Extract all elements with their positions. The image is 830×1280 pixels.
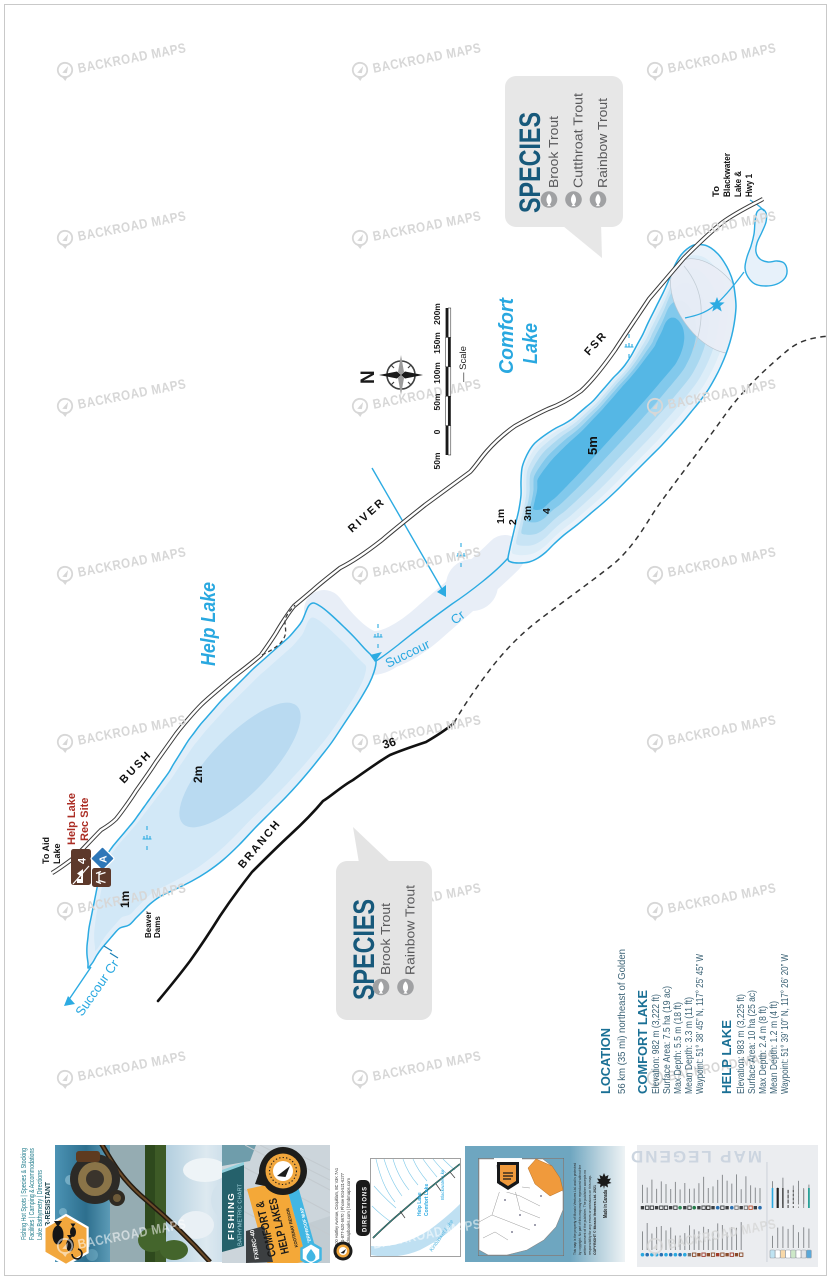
svg-text:— Scale: — Scale (458, 346, 469, 382)
svg-text:Max Depth: 5.5 m (18 ft): Max Depth: 5.5 m (18 ft) (673, 1002, 684, 1094)
svg-text:Cutthroat Trout: Cutthroat Trout (572, 92, 586, 188)
svg-text:This map is the property of Mu: This map is the property of Mussio Ventu… (573, 1163, 577, 1255)
svg-text:2m: 2m (191, 766, 205, 783)
svg-text:HELP LAKE: HELP LAKE (720, 1020, 734, 1094)
svg-text:Mean Depth: 1.2 m (4 ft): Mean Depth: 1.2 m (4 ft) (769, 1001, 780, 1094)
svg-text:Help Lake: Help Lake (417, 1192, 423, 1216)
svg-text:N: N (358, 370, 379, 384)
svg-text:by copyright. No part of this: by copyright. No part of this map may be… (578, 1165, 582, 1255)
svg-text:Lake: Lake (52, 843, 62, 864)
svg-text:written consent of the publish: written consent of the publisher. The pu… (583, 1170, 587, 1255)
svg-text:Max Depth: 2.4 m (8 ft): Max Depth: 2.4 m (8 ft) (758, 1006, 769, 1094)
svg-text:Made in Canada: Made in Canada (603, 1190, 609, 1218)
svg-text:Rainbow Trout: Rainbow Trout (404, 884, 418, 975)
svg-text:MAP LEGEND: MAP LEGEND (629, 1147, 762, 1166)
svg-text:COMFORT LAKE: COMFORT LAKE (636, 990, 650, 1094)
svg-text:Facilities | Camping & Accommo: Facilities | Camping & Accommodations (29, 1148, 36, 1240)
svg-text:Surface Area: 10 ha (25 ac): Surface Area: 10 ha (25 ac) (747, 990, 758, 1094)
svg-text:2: 2 (507, 519, 519, 525)
svg-text:Help Lake: Help Lake (66, 793, 78, 845)
svg-text:200m: 200m (432, 303, 442, 325)
svg-text:To: To (711, 186, 722, 197)
svg-text:Elevation: 982 m (3,222 ft): Elevation: 982 m (3,222 ft) (651, 994, 662, 1094)
svg-text:Lake &: Lake & (733, 171, 744, 197)
svg-text:Elevation: 983 m (3,225 ft): Elevation: 983 m (3,225 ft) (736, 994, 747, 1094)
svg-text:Surface Area: 7.5 ha (19 ac): Surface Area: 7.5 ha (19 ac) (662, 986, 673, 1094)
svg-text:1m: 1m (495, 509, 507, 524)
svg-text:4: 4 (77, 857, 89, 864)
svg-text:Rec Site: Rec Site (79, 798, 91, 841)
svg-text:COPYRIGHT © Mussio Ventures Lt: COPYRIGHT © Mussio Ventures Ltd. 2021 (593, 1185, 597, 1255)
svg-text:Beaver: Beaver (144, 911, 153, 938)
svg-text:Fishing Hot Spots | Species &: Fishing Hot Spots | Species & Stocking (21, 1148, 28, 1240)
svg-text:Dams: Dams (153, 916, 162, 938)
svg-text:100m: 100m (432, 362, 442, 384)
svg-text:50m: 50m (432, 393, 442, 410)
svg-text:4: 4 (541, 508, 553, 514)
svg-text:Brook Trout: Brook Trout (547, 115, 561, 188)
svg-text:DIRECTIONS: DIRECTIONS (363, 1186, 369, 1232)
svg-text:0: 0 (432, 429, 442, 434)
svg-text:Blackwater Lke: Blackwater Lke (440, 1169, 445, 1200)
svg-text:50m: 50m (432, 452, 442, 469)
svg-text:Blackwater: Blackwater (722, 153, 733, 197)
svg-text:56 km (35 mi) northeast of Gol: 56 km (35 mi) northeast of Golden (617, 949, 628, 1094)
svg-text:Waypoint: 51° 39’ 10” N, 117°: Waypoint: 51° 39’ 10” N, 117° 26’ 20” W (780, 954, 791, 1094)
svg-text:150m: 150m (432, 332, 442, 354)
svg-text:A: A (98, 855, 110, 863)
svg-text:Waypoint: 51° 38’ 45” N, 117°: Waypoint: 51° 38’ 45” N, 117° 25’ 45” W (695, 954, 706, 1094)
svg-text:responsibility for any errors: responsibility for any errors or omissio… (588, 1175, 592, 1255)
svg-text:BATHYMETRIC CHART: BATHYMETRIC CHART (238, 1184, 244, 1246)
svg-text:Brook Trout: Brook Trout (379, 902, 393, 975)
svg-text:Lake: Lake (520, 323, 542, 364)
svg-text:5m: 5m (585, 436, 600, 455)
svg-text:Rainbow Trout: Rainbow Trout (596, 97, 610, 188)
svg-text:To Aid: To Aid (41, 837, 51, 864)
svg-text:3m: 3m (522, 506, 534, 521)
svg-text:Hwy 1: Hwy 1 (744, 173, 755, 197)
svg-text:1m: 1m (118, 891, 132, 908)
svg-text:Comfort Lake: Comfort Lake (424, 1184, 430, 1216)
svg-text:Comfort: Comfort (496, 297, 518, 374)
svg-text:Mean Depth: 3.3 m (11 ft): Mean Depth: 3.3 m (11 ft) (684, 997, 695, 1094)
svg-text:Help Lake: Help Lake (198, 582, 220, 666)
svg-text:LOCATION: LOCATION (599, 1028, 613, 1094)
svg-text:FISHING: FISHING (226, 1192, 236, 1240)
